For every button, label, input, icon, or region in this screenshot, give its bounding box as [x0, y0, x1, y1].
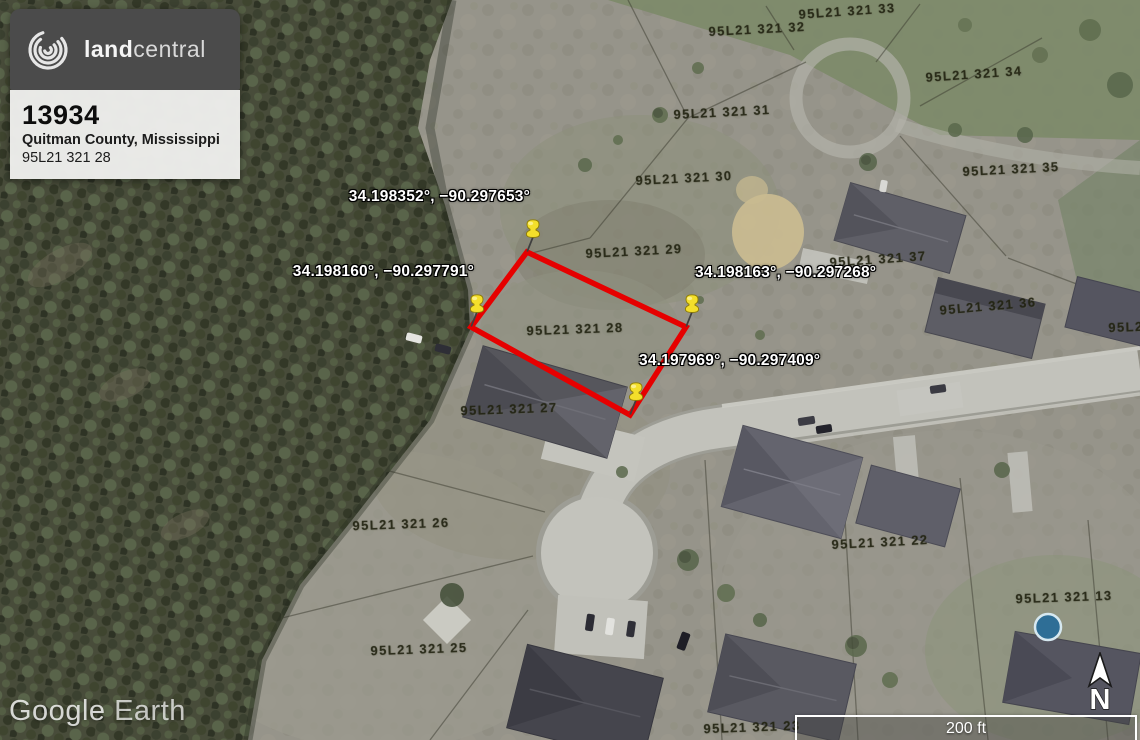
listing-location: Quitman County, Mississippi: [22, 131, 228, 149]
north-arrow: N: [1080, 652, 1120, 714]
brand-name-bold: land: [84, 36, 133, 62]
north-arrow-icon: N: [1080, 652, 1120, 714]
brand-name: landcentral: [84, 36, 206, 63]
coordinate-label: 34.198163°, −90.297268°: [695, 264, 876, 282]
watermark-google: Google: [9, 695, 106, 727]
pin-west-corner[interactable]: 34.198160°, −90.297791°: [464, 294, 490, 328]
watermark-earth: Earth: [114, 695, 186, 727]
listing-id: 13934: [22, 100, 228, 131]
pushpin-icon: [623, 382, 649, 416]
pin-south-corner[interactable]: 34.197969°, −90.297409°: [623, 382, 649, 416]
coordinate-label: 34.198352°, −90.297653°: [349, 188, 530, 206]
pushpin-icon: [679, 294, 705, 328]
pin-northwest-corner[interactable]: 34.198352°, −90.297653°: [520, 219, 546, 253]
listing-parcel-number: 95L21 321 28: [22, 149, 228, 167]
google-earth-watermark: Google Earth: [9, 695, 186, 728]
coordinate-label: 34.198160°, −90.297791°: [293, 263, 474, 281]
scale-label: 200 ft: [946, 720, 986, 738]
scale-bar: 200 ft: [795, 715, 1137, 740]
north-label: N: [1090, 684, 1111, 714]
listing-card-header: landcentral: [10, 9, 240, 90]
landcentral-logo-icon: [24, 26, 72, 74]
pin-east-corner[interactable]: 34.198163°, −90.297268°: [679, 294, 705, 328]
coordinate-label: 34.197969°, −90.297409°: [639, 352, 820, 370]
listing-card-body: 13934 Quitman County, Mississippi 95L21 …: [10, 90, 240, 179]
brand-name-light: central: [133, 36, 206, 62]
pushpin-icon: [464, 294, 490, 328]
map-viewport[interactable]: 95L21 321 32 95L21 321 33 95L21 321 34 9…: [0, 0, 1140, 740]
pushpin-icon: [520, 219, 546, 253]
listing-card: landcentral 13934 Quitman County, Missis…: [10, 9, 240, 179]
